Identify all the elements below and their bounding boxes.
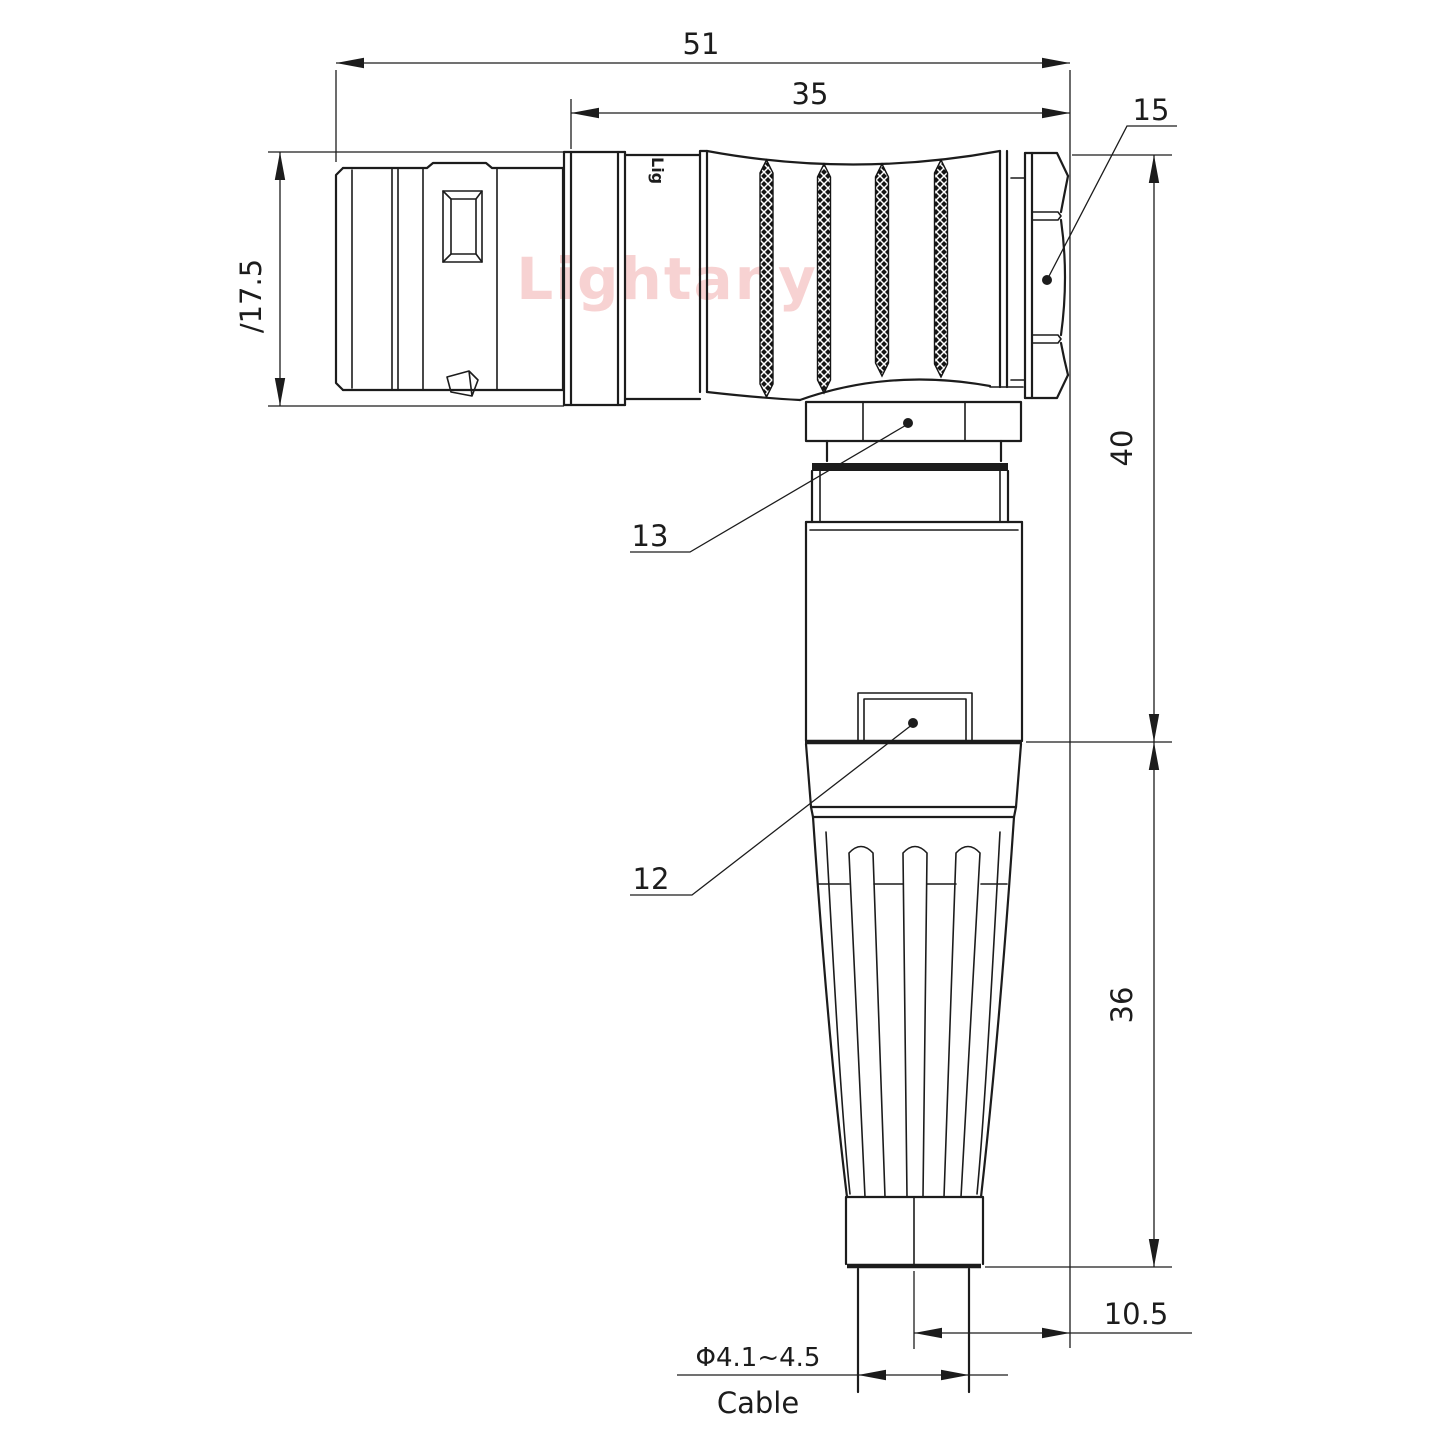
gland-neck xyxy=(812,441,1008,522)
coupling-nut xyxy=(806,402,1021,441)
technical-drawing: Lightany Lig xyxy=(0,0,1440,1440)
callout-hex-nut-label: 15 xyxy=(1133,93,1170,127)
strain-relief-boot xyxy=(806,744,1021,1197)
o-ring-groove xyxy=(812,463,1008,471)
dimension-total-length: 51 xyxy=(336,27,1070,68)
callout-housing-label: 12 xyxy=(633,862,670,896)
dim-cable-diameter-value: Φ4.1~4.5 xyxy=(696,1343,821,1373)
dim-boot-height-value: 36 xyxy=(1105,987,1139,1024)
dim-total-length-value: 51 xyxy=(683,27,720,61)
callout-coupling-nut-13: 13 xyxy=(630,418,913,553)
housing-window xyxy=(858,693,972,740)
dim-shell-diameter-value: ∕17.5 xyxy=(234,259,268,333)
dimension-cable-diameter: Φ4.1~4.5 Cable xyxy=(677,1343,1008,1420)
drawing-sheet: Lightany Lig xyxy=(0,0,1440,1440)
callout-hex-nut-15: 15 xyxy=(1042,93,1177,285)
dimension-axis-offset: 10.5 xyxy=(914,1297,1192,1338)
dimension-front-length: 35 xyxy=(571,77,1070,118)
boot-ferrule xyxy=(846,1197,983,1266)
bayonet-notch xyxy=(447,371,478,396)
dimension-boot-height: 36 xyxy=(1105,742,1159,1267)
dim-axis-offset-value: 10.5 xyxy=(1104,1297,1169,1331)
keyway-boss xyxy=(443,191,482,262)
callout-coupling-nut-label: 13 xyxy=(632,519,669,553)
dim-rear-height-value: 40 xyxy=(1105,430,1139,467)
dimension-shell-diameter: ∕17.5 xyxy=(234,152,285,406)
cable-label: Cable xyxy=(717,1386,799,1420)
dimension-rear-height: 40 xyxy=(1105,155,1159,742)
engraving-text: Lig xyxy=(648,157,667,184)
dim-front-length-value: 35 xyxy=(792,77,829,111)
housing-tube xyxy=(805,522,1022,742)
